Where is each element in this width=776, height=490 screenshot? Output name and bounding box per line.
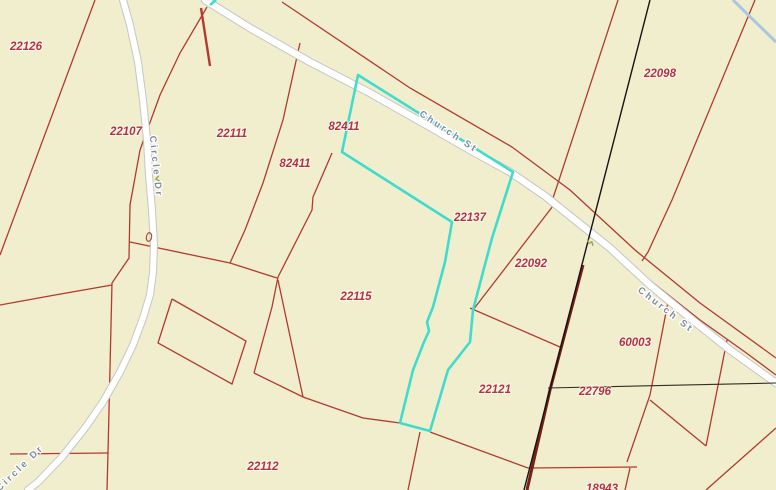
parcel-boundary-line <box>201 8 210 66</box>
survey-line <box>524 0 650 490</box>
parcel-label[interactable]: 18943 <box>586 483 619 490</box>
road-label: Church St <box>417 109 480 156</box>
parcel-label[interactable]: 22115 <box>339 291 372 303</box>
parcel-label[interactable]: 22112 <box>246 461 279 473</box>
parcel-label[interactable]: 22111 <box>216 128 247 140</box>
parcel-boundary-line <box>706 428 776 490</box>
parcel-boundary-line <box>10 453 108 454</box>
parcel-boundary-line <box>278 153 332 277</box>
parcel-boundary-line <box>470 308 560 347</box>
parcel-boundary-line <box>553 0 618 198</box>
parcel-label[interactable]: 22126 <box>9 41 43 53</box>
parcel-boundary-line <box>650 400 706 446</box>
parcel-boundary-line <box>627 302 668 462</box>
parcel-boundary-line <box>528 467 637 468</box>
stream-line <box>733 0 776 42</box>
parcel-map-canvas[interactable]: Church StChurch StCircle DrCircle Dr2212… <box>0 0 776 490</box>
parcel-boundary-line <box>230 43 300 263</box>
parcel-boundary-line <box>278 280 303 397</box>
parcel-boundary-line <box>158 299 246 384</box>
parcel-boundary-line <box>625 468 630 490</box>
parcel-label[interactable]: 60003 <box>619 337 652 349</box>
parcel-label[interactable]: 22121 <box>478 384 511 396</box>
parcel-label[interactable]: 22098 <box>643 68 677 80</box>
parcel-boundary-line <box>0 285 112 305</box>
parcel-label[interactable]: 22796 <box>578 386 612 398</box>
parcel-boundary-line <box>408 432 420 490</box>
parcel-boundary-line <box>254 277 278 373</box>
parcel-label[interactable]: 22107 <box>109 126 143 138</box>
parcel-label[interactable]: 22092 <box>514 258 548 270</box>
parcel-boundary-line <box>706 340 727 446</box>
parcel-boundary-line <box>0 0 95 255</box>
parcel-label[interactable]: 82411 <box>279 158 310 170</box>
circle-dr-road[interactable] <box>28 0 154 490</box>
parcel-boundary-line <box>430 432 528 468</box>
parcel-label[interactable]: 82411 <box>328 121 359 133</box>
parcel-label[interactable]: 22137 <box>453 212 487 224</box>
parcel-boundary-line <box>642 0 755 261</box>
thick-parcel-boundary-line <box>527 265 583 490</box>
parcel-boundary-line <box>254 373 400 423</box>
map-viewport[interactable]: Church StChurch StCircle DrCircle Dr2212… <box>0 0 776 490</box>
